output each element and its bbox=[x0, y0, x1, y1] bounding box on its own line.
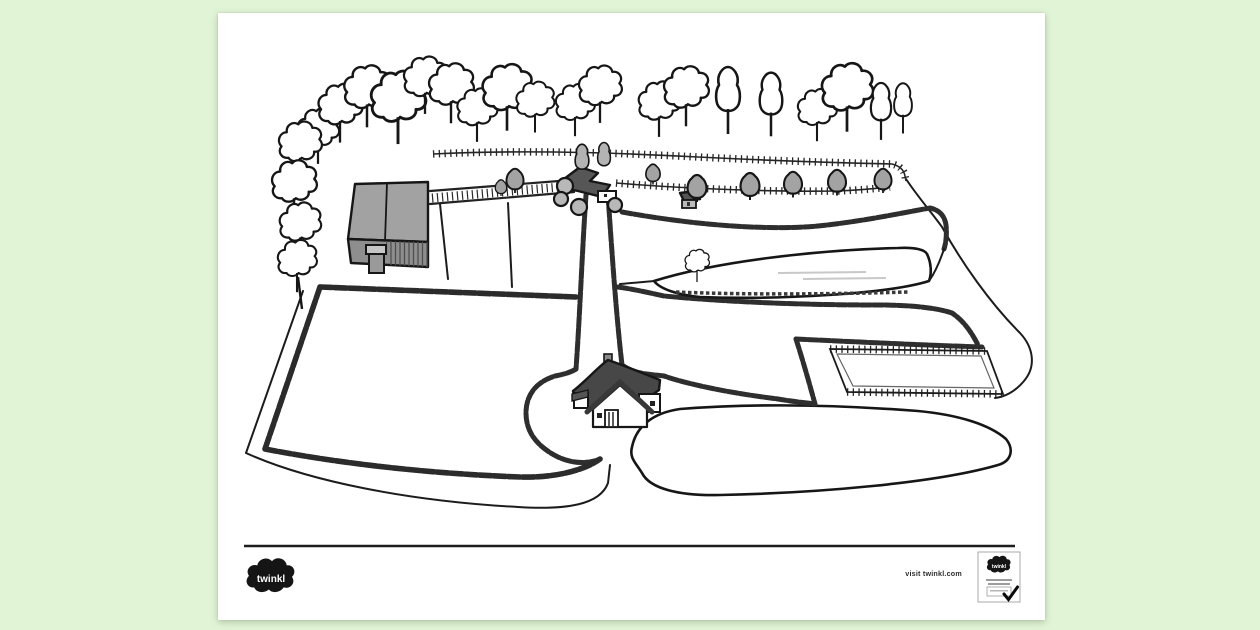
visit-link-text: visit twinkl.com bbox=[905, 569, 962, 578]
small-field-tree bbox=[685, 249, 709, 282]
fenced-paddock bbox=[830, 349, 1003, 394]
farm-illustration: twinkl visit twinkl.com twinkl bbox=[218, 13, 1045, 620]
strip-field bbox=[620, 248, 944, 298]
badge-logo-text: twinkl bbox=[992, 564, 1007, 570]
twinkl-logo: twinkl bbox=[247, 558, 295, 592]
meadow-outline bbox=[631, 405, 1010, 495]
barn bbox=[348, 182, 428, 273]
worksheet-page: twinkl visit twinkl.com twinkl bbox=[218, 13, 1045, 620]
twinkl-logo-text: twinkl bbox=[257, 574, 286, 585]
junction-farm-buildings bbox=[554, 167, 622, 215]
footer: twinkl visit twinkl.com twinkl bbox=[244, 546, 1020, 602]
page-background: twinkl visit twinkl.com twinkl bbox=[0, 0, 1260, 630]
farmhouse bbox=[572, 354, 660, 427]
left-tree-cluster bbox=[272, 122, 322, 309]
quality-badge: twinkl bbox=[978, 552, 1020, 602]
